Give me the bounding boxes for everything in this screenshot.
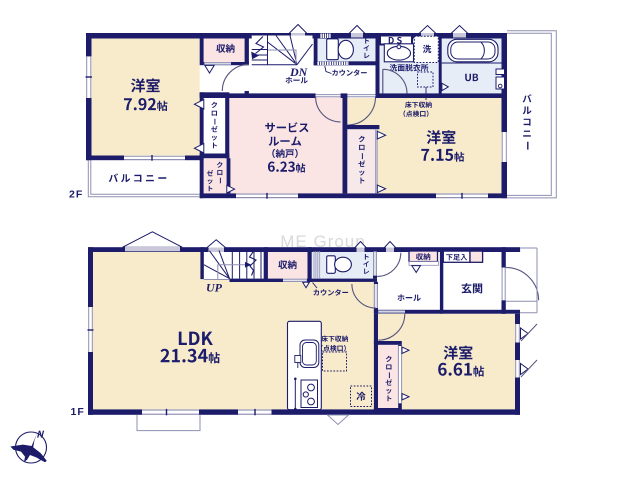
svg-text:DN: DN: [289, 65, 309, 79]
svg-text:UP: UP: [206, 281, 223, 295]
svg-text:2F: 2F: [69, 188, 83, 200]
svg-text:1F: 1F: [71, 406, 85, 418]
